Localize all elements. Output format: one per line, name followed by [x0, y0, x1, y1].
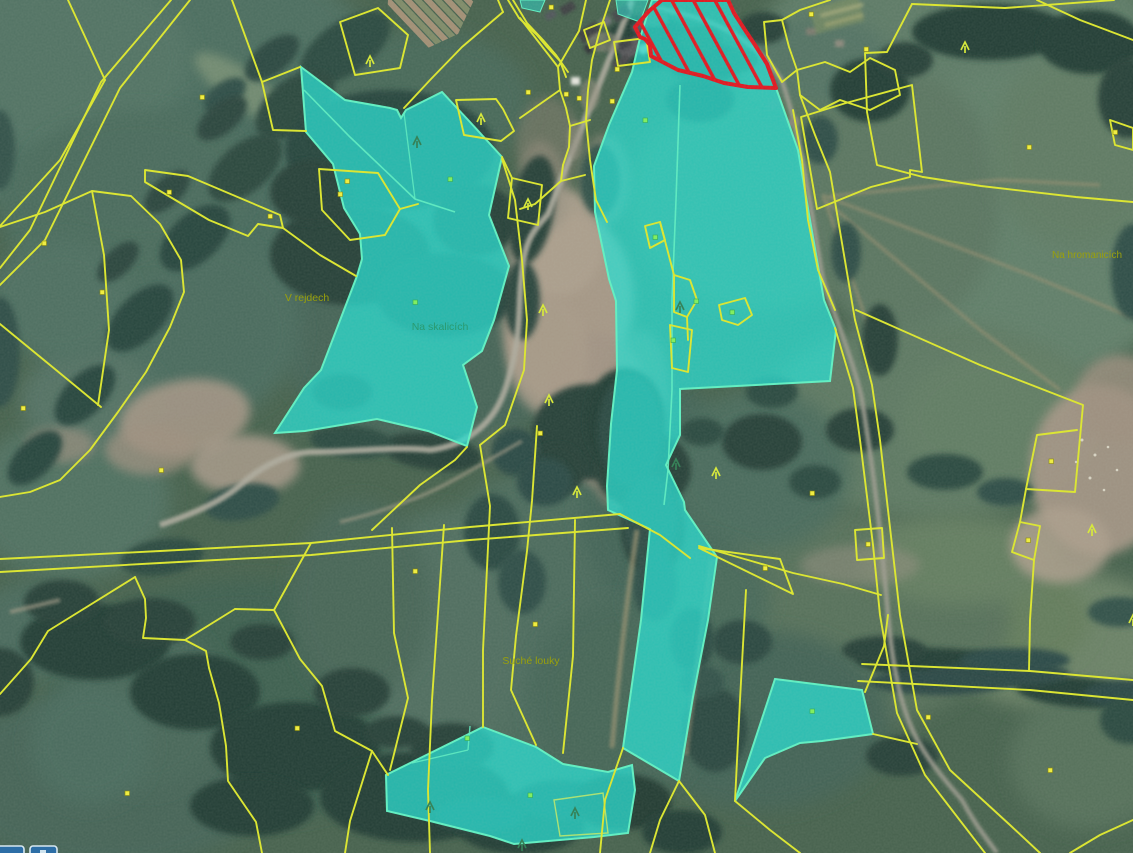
svg-text:V rejdech: V rejdech — [285, 292, 330, 304]
svg-text:Suché louky: Suché louky — [502, 655, 560, 667]
svg-text:Na skalicích: Na skalicích — [412, 321, 469, 333]
svg-text:Na hromanicích: Na hromanicích — [1052, 250, 1122, 261]
